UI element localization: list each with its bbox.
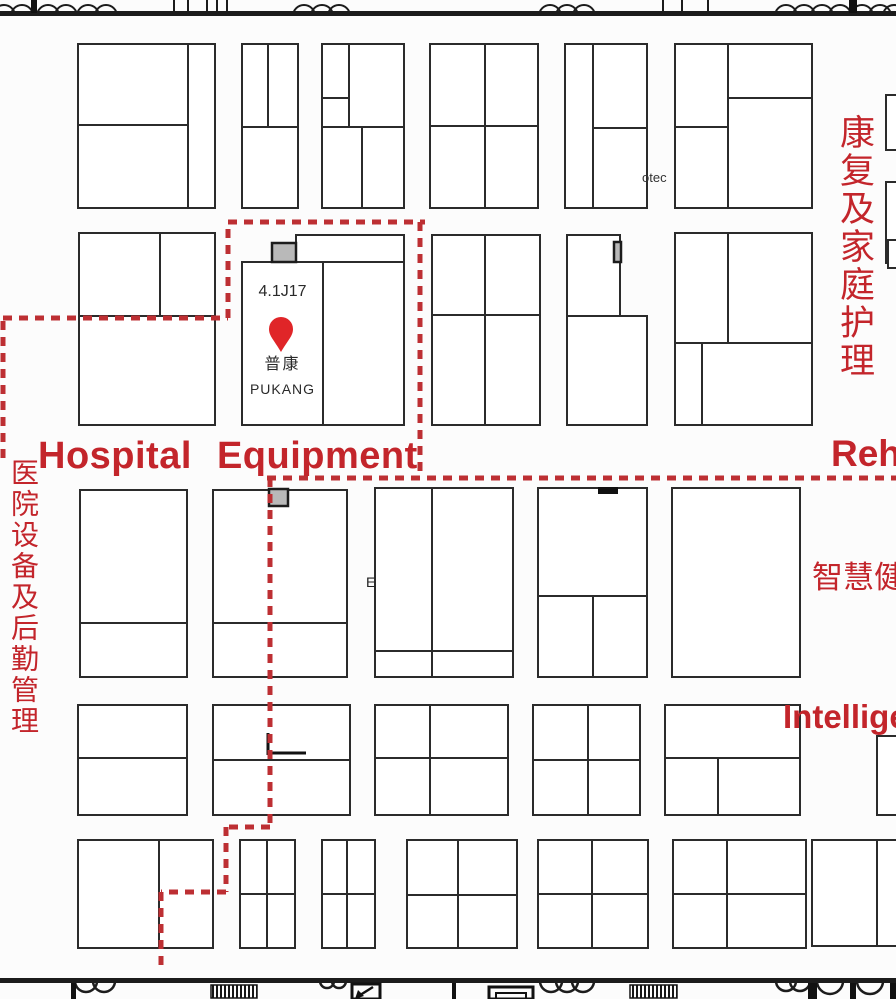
service-room-outline (496, 993, 526, 999)
rehabilitation-label-en: Reh (831, 435, 896, 472)
floorplan-canvas (0, 0, 896, 999)
hall-wall (0, 11, 896, 16)
rehab-home-care-label: 康复及家庭护理 (837, 114, 872, 380)
booth-outline (296, 235, 404, 262)
pin-booth-name-en: PUKANG (242, 382, 323, 396)
intelligent-label: Intellige (783, 700, 896, 733)
booth-outline (812, 840, 896, 946)
booth-mark (598, 487, 618, 494)
otec-booth-label: otec (642, 171, 667, 184)
stairs-hatch (630, 985, 677, 998)
smart-health-label: 智慧健 (812, 562, 896, 593)
booth-outline (672, 488, 800, 677)
pin-booth-name-cn: 普康 (242, 357, 323, 373)
stairs-hatch (211, 985, 257, 998)
booth-outline (213, 490, 347, 677)
booth-outline (567, 235, 620, 316)
tree-trunk (850, 983, 856, 999)
exhibition-floorplan: Hospital Equipment Reh 康复及家庭护理 医院设备及后勤管理… (0, 0, 896, 999)
e-booth-label: E (366, 575, 375, 589)
booth-outline (886, 95, 896, 150)
tree-trunk (890, 983, 896, 999)
gray-structure-block (614, 242, 621, 262)
tree-trunk (452, 983, 456, 999)
hospital-logistics-label: 医院设备及后勤管理 (9, 458, 37, 737)
tree-trunk (808, 983, 817, 999)
tree-trunk (31, 0, 37, 13)
booth-outline (888, 240, 896, 268)
booth-outline (375, 488, 513, 677)
booth-outline (375, 705, 508, 815)
pin-booth-id: 4.1J17 (242, 284, 323, 300)
booth-outline (567, 316, 647, 425)
booth-outline (79, 233, 215, 425)
booth-outline (565, 44, 647, 208)
booth-outline (675, 233, 812, 425)
booth-outline (78, 705, 187, 815)
booth-outline (877, 736, 896, 815)
gray-structure-block (272, 243, 296, 262)
hall-wall (0, 978, 896, 983)
tree-trunk (849, 0, 857, 13)
hospital-equipment-label: Hospital Equipment (38, 437, 418, 475)
booth-outline (665, 705, 800, 815)
booth-outline (80, 490, 187, 677)
tree-trunk (71, 983, 76, 999)
